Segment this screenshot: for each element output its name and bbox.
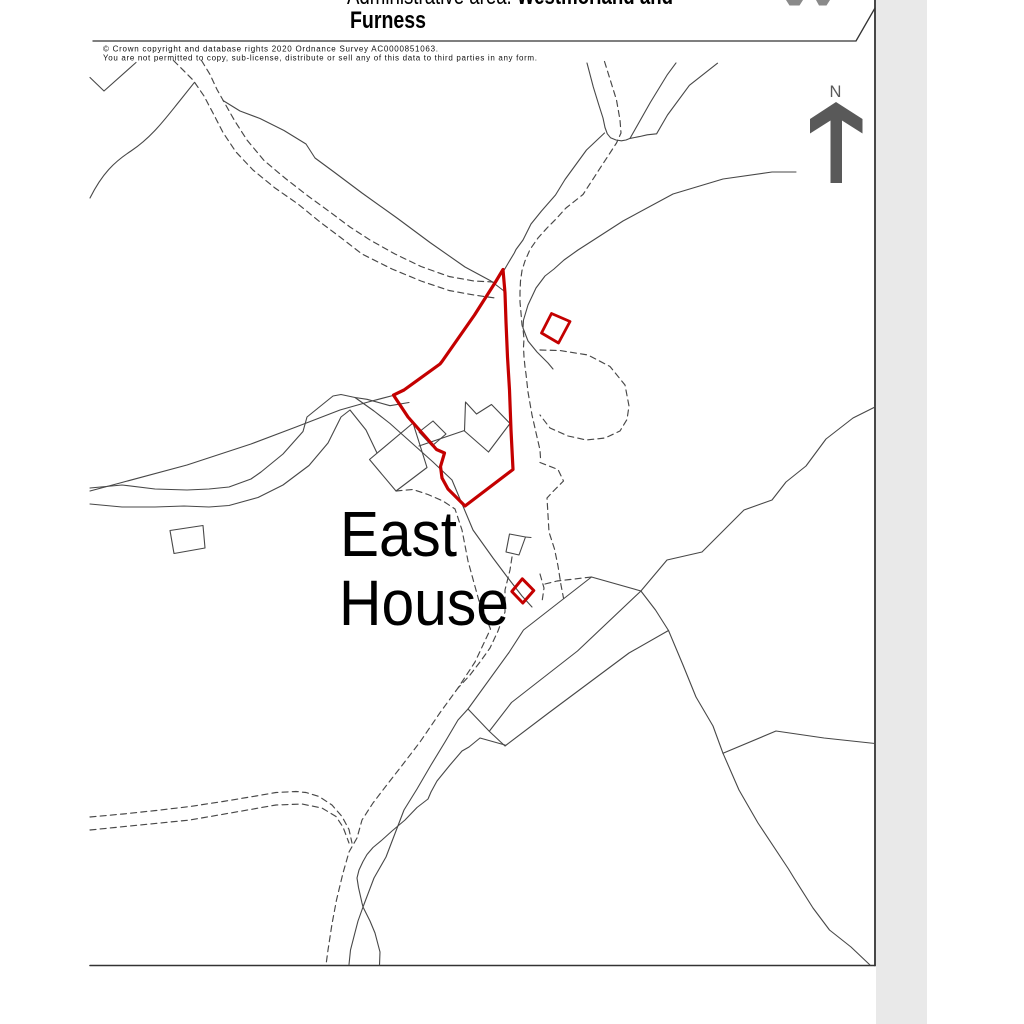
svg-text:You are not permitted to copy,: You are not permitted to copy, sub-licen… — [103, 54, 537, 63]
svg-text:East: East — [340, 498, 457, 570]
svg-text:House: House — [339, 567, 509, 639]
svg-text:© Crown copyright and database: © Crown copyright and database rights 20… — [103, 45, 438, 54]
svg-text:N: N — [830, 83, 842, 101]
svg-text:Furness: Furness — [350, 7, 426, 34]
